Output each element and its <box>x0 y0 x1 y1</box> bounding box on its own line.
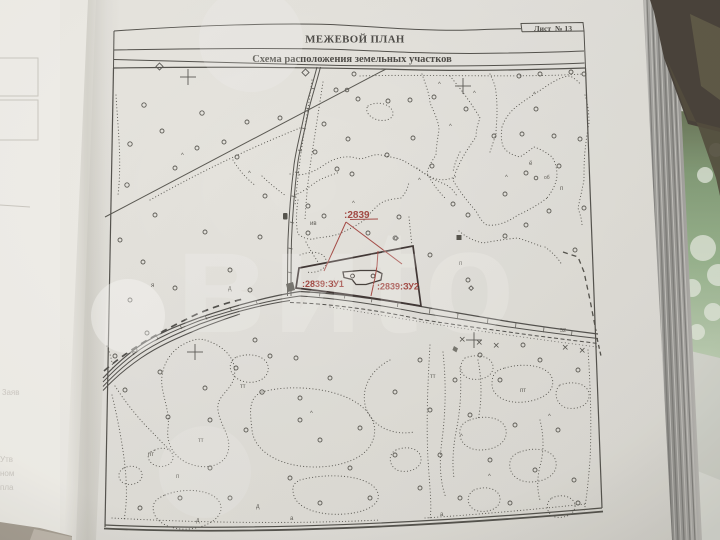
svg-text:виto: виto <box>175 199 521 364</box>
